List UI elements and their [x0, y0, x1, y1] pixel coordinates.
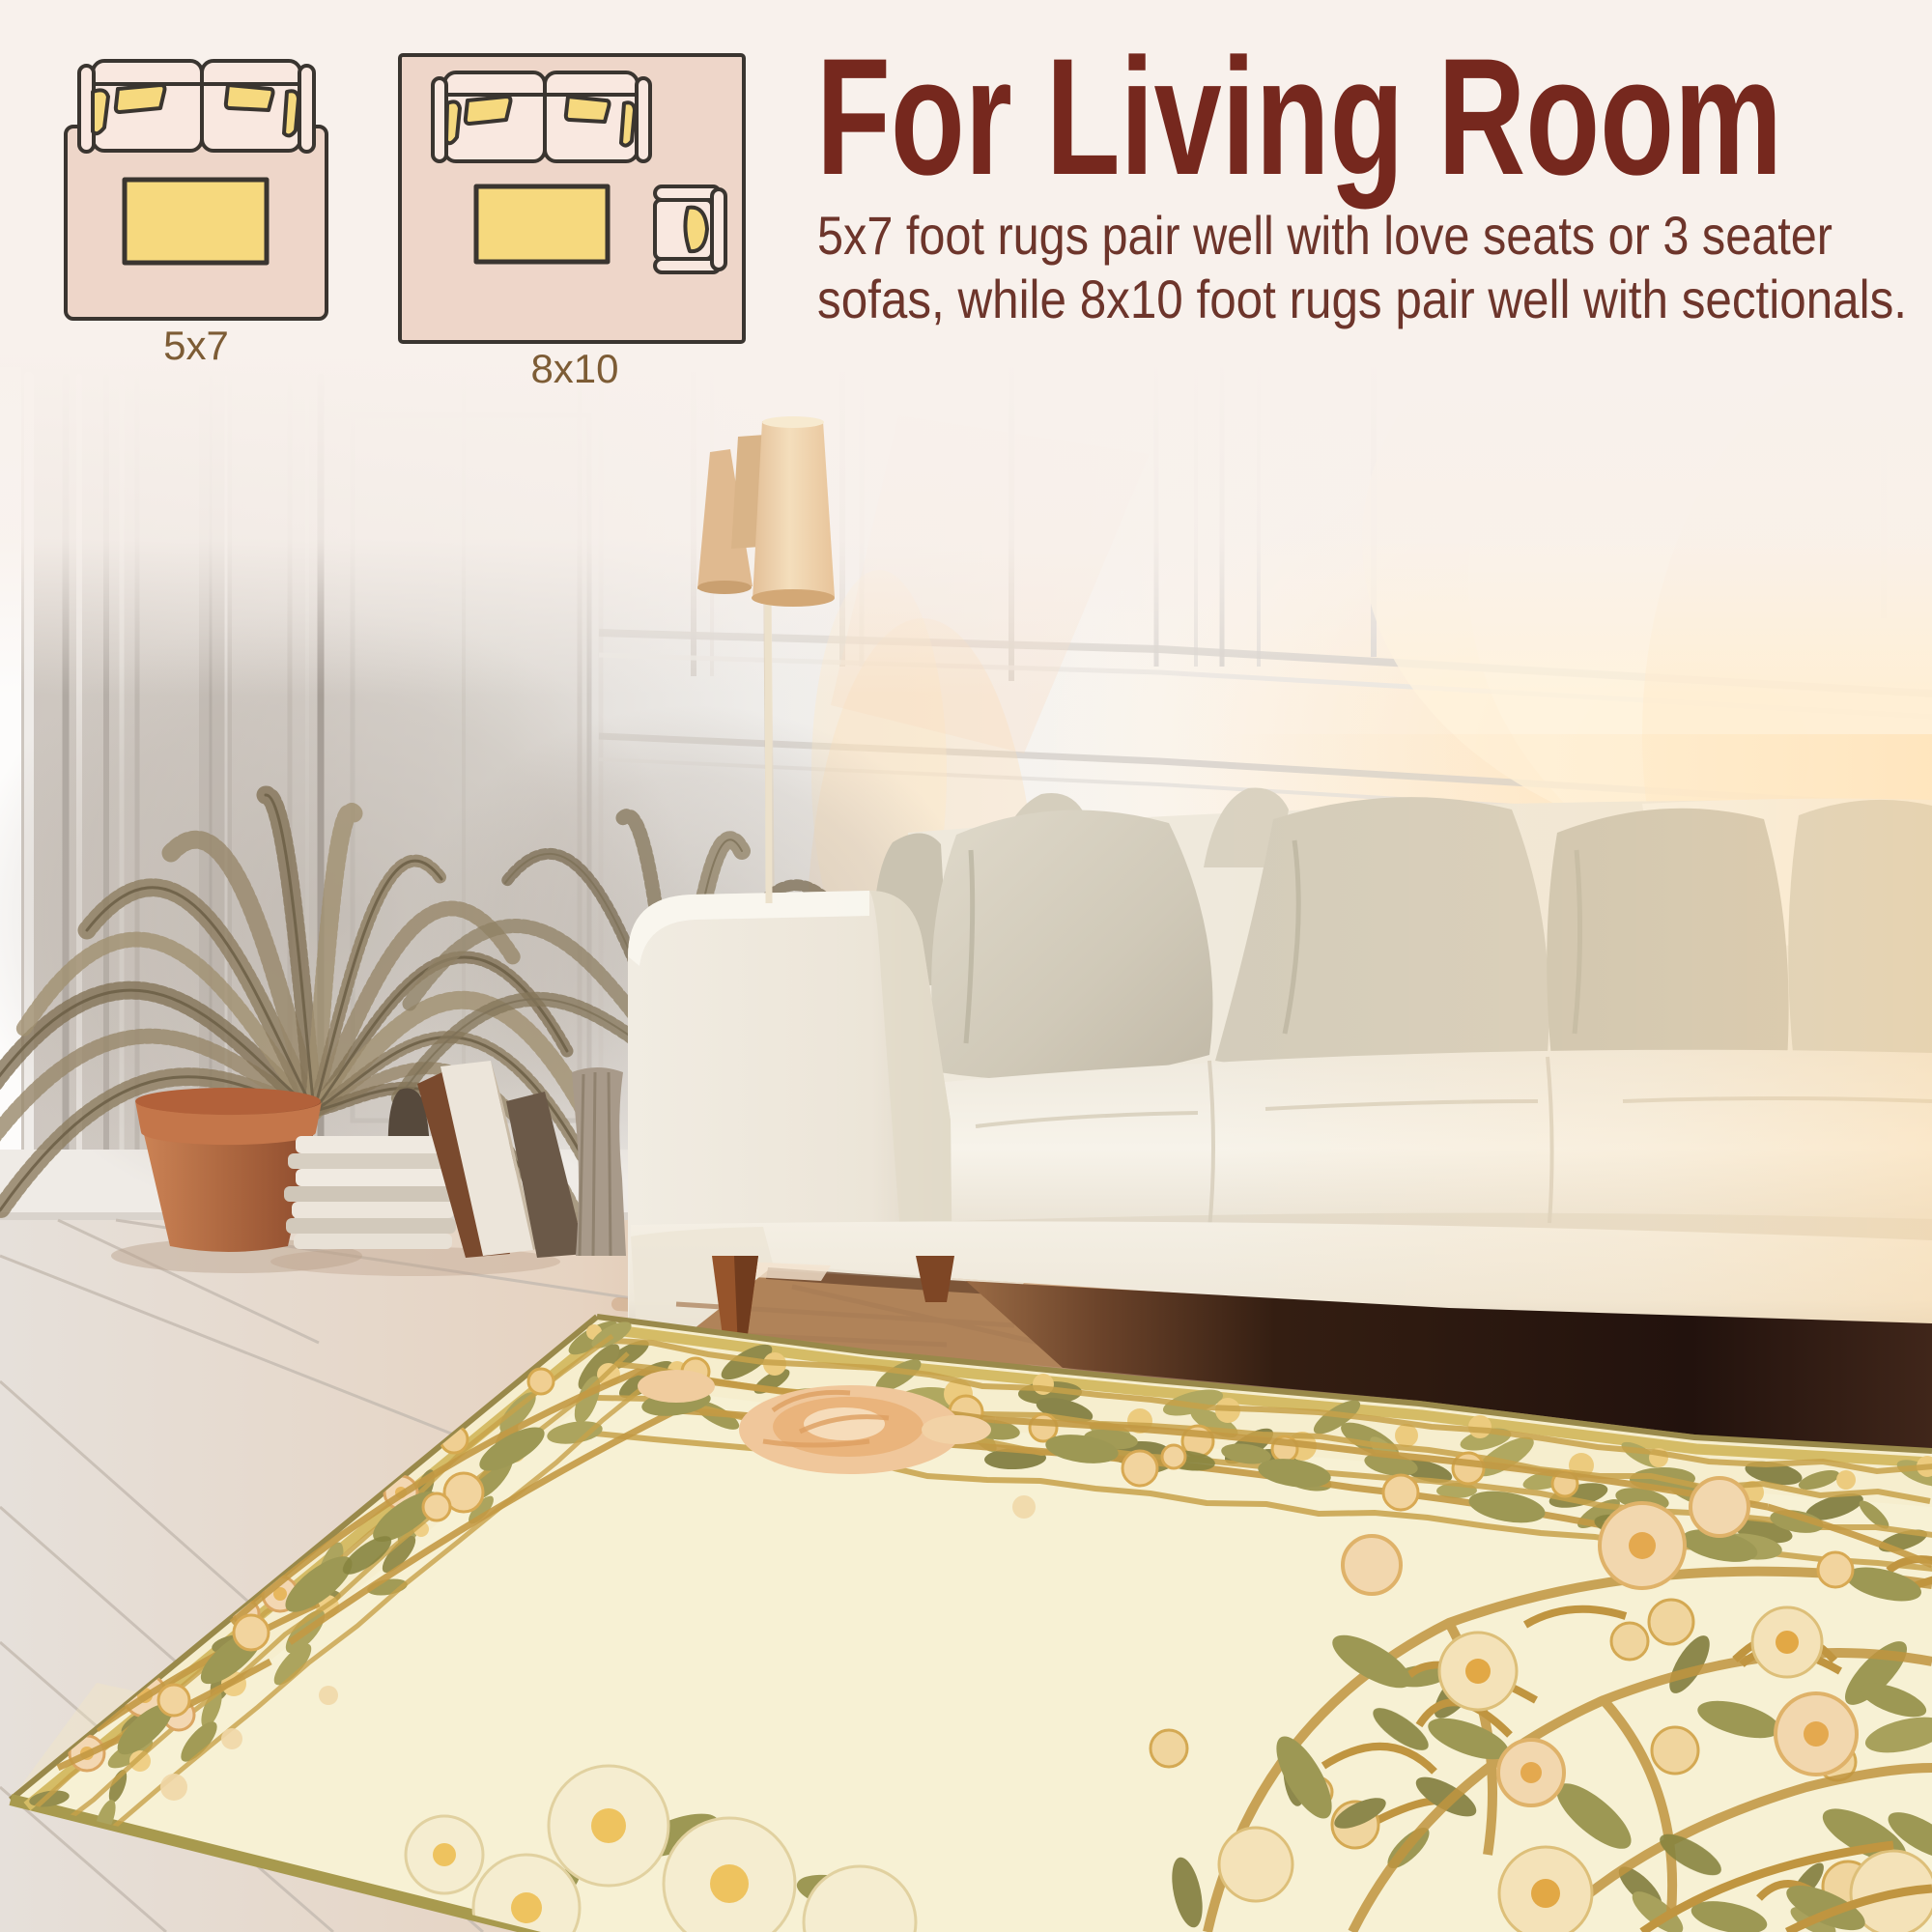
svg-text:5x7: 5x7: [163, 323, 229, 368]
svg-text:8x10: 8x10: [530, 346, 618, 391]
svg-text:For Living Room: For Living Room: [816, 24, 1782, 210]
svg-text:5x7 foot rugs pair well with l: 5x7 foot rugs pair well with love seats …: [817, 205, 1833, 266]
svg-text:sofas, while 8x10 foot rugs pa: sofas, while 8x10 foot rugs pair well wi…: [817, 269, 1907, 329]
